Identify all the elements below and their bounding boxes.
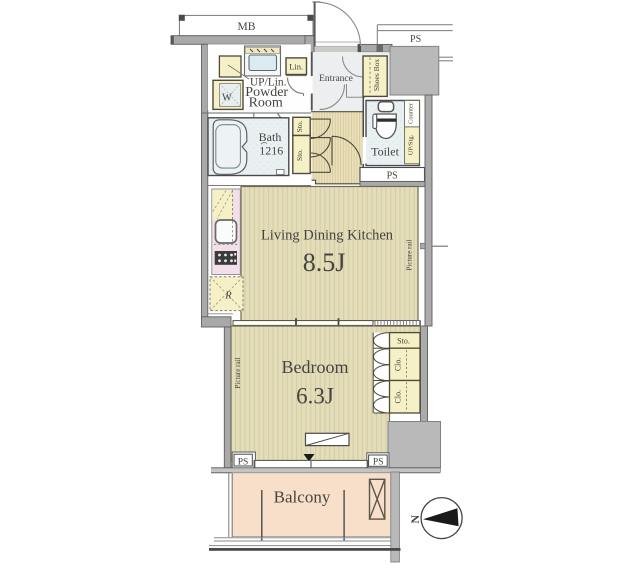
svg-text:Toilet: Toilet: [371, 145, 399, 159]
svg-text:Bath: Bath: [259, 130, 282, 144]
svg-text:Bedroom: Bedroom: [282, 357, 349, 377]
svg-text:Lin.: Lin.: [289, 62, 303, 72]
svg-text:Clo.: Clo.: [394, 390, 403, 404]
svg-text:Sto.: Sto.: [397, 337, 410, 346]
svg-text:PS: PS: [238, 458, 249, 468]
svg-text:R: R: [224, 291, 232, 302]
svg-text:N: N: [408, 515, 422, 524]
svg-text:Living Dining Kitchen: Living Dining Kitchen: [261, 227, 394, 243]
svg-text:1216: 1216: [259, 143, 283, 157]
svg-text:Picture rail: Picture rail: [234, 357, 242, 388]
svg-text:PS: PS: [373, 458, 384, 468]
svg-text:8.5J: 8.5J: [303, 248, 346, 277]
svg-text:UP/Stg.: UP/Stg.: [407, 134, 414, 155]
svg-text:Shoes Box: Shoes Box: [372, 59, 381, 92]
svg-text:Counter: Counter: [407, 102, 414, 124]
svg-text:Entrance: Entrance: [319, 74, 353, 84]
svg-text:PS: PS: [410, 34, 421, 45]
svg-text:Sto.: Sto.: [295, 120, 304, 132]
svg-text:6.3J: 6.3J: [296, 383, 334, 408]
svg-text:PS: PS: [387, 171, 398, 182]
svg-text:Room: Room: [249, 95, 283, 110]
svg-text:Picture rail: Picture rail: [405, 239, 413, 270]
svg-text:Sto.: Sto.: [295, 149, 304, 161]
svg-text:MB: MB: [238, 21, 256, 33]
svg-text:Balcony: Balcony: [274, 488, 331, 507]
svg-text:W: W: [222, 93, 232, 104]
svg-text:Clo.: Clo.: [394, 358, 403, 372]
